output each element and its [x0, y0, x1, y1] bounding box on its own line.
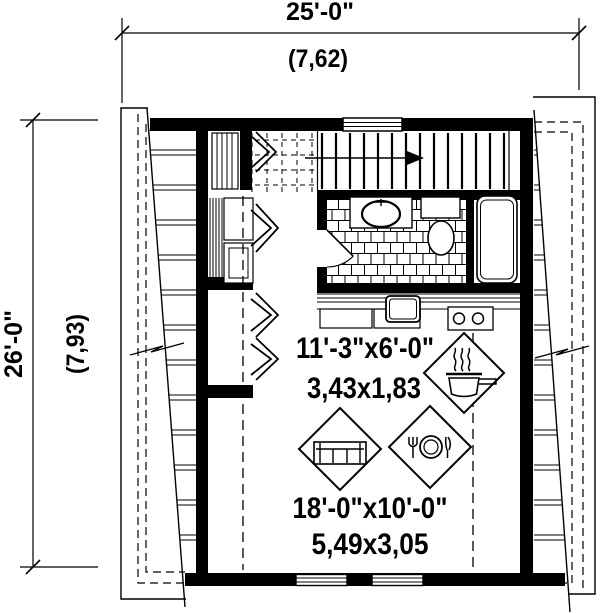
- dim-top-imperial: 25'-0": [286, 0, 354, 26]
- toilet-tank: [421, 197, 460, 218]
- chevron-marker: [251, 204, 278, 252]
- wall-top: [150, 118, 533, 131]
- dim-top-metric: (7,62): [288, 45, 348, 73]
- roof-edge-left: [121, 108, 199, 607]
- wall-bathroom-door-jamb: [317, 267, 327, 283]
- kitchen-diamond: [424, 333, 504, 413]
- stairs-up-arrow-icon: [407, 151, 424, 165]
- louver-door-lines: [217, 133, 232, 189]
- dimension-top: [115, 18, 586, 103]
- toilet-bowl: [428, 221, 454, 255]
- window-top: [343, 118, 402, 131]
- window-bottom-left: [296, 575, 347, 586]
- shelf-hatch-lines: [210, 198, 222, 283]
- dining-diamond: [389, 406, 471, 488]
- bathroom: [327, 196, 517, 283]
- living-size-imperial: 18'-0"x10'-0": [293, 492, 448, 525]
- kitchen-sink-icon: [386, 296, 420, 322]
- dim-left-imperial: 26'-0": [0, 310, 28, 378]
- floor-plan-drawing: 25'-0" (7,62) 26'-0" (7,93): [0, 0, 600, 613]
- chevron-markers: [251, 132, 278, 380]
- dim-left-metric: (7,93): [62, 314, 90, 374]
- wall-storage-bottom: [196, 385, 253, 398]
- chevron-marker: [251, 132, 276, 172]
- shelf-box: [224, 243, 253, 283]
- window-bottom-right: [372, 575, 423, 586]
- roof-slope-line: [147, 108, 185, 607]
- base-cabinet: [320, 309, 372, 328]
- cooktop-icon: [448, 307, 493, 330]
- living-diamond: [299, 408, 381, 490]
- kitchen-size-imperial: 11'-3"x6'-0": [296, 332, 434, 365]
- chevron-marker: [251, 293, 278, 337]
- closet-top: [212, 133, 238, 189]
- counter-edge-lines: [317, 294, 530, 309]
- stairs: [305, 131, 509, 190]
- wall-left: [196, 131, 208, 573]
- roof-slope-line: [534, 110, 570, 612]
- bathroom-vanity: [350, 197, 412, 228]
- floor-plan: 25'-0" (7,62) 26'-0" (7,93): [0, 0, 600, 613]
- bathtub-icon: [477, 196, 517, 283]
- wall-bathroom-door-jamb: [317, 200, 327, 230]
- chevron-marker: [251, 338, 278, 380]
- shelf-box: [224, 198, 253, 240]
- roof-dashed-line: [534, 122, 583, 592]
- wall-bathroom-bottom: [317, 283, 533, 293]
- kitchen: [317, 294, 530, 330]
- living-size-metric: 5,49x3,05: [312, 528, 429, 561]
- break-mark: [535, 346, 589, 358]
- wall-tub-partition: [466, 200, 474, 283]
- roof-dashed-line: [534, 132, 572, 583]
- kitchen-size-metric: 3,43x1,83: [307, 372, 421, 405]
- roof-edge-right: [533, 97, 595, 612]
- closet-shelves: [210, 198, 253, 283]
